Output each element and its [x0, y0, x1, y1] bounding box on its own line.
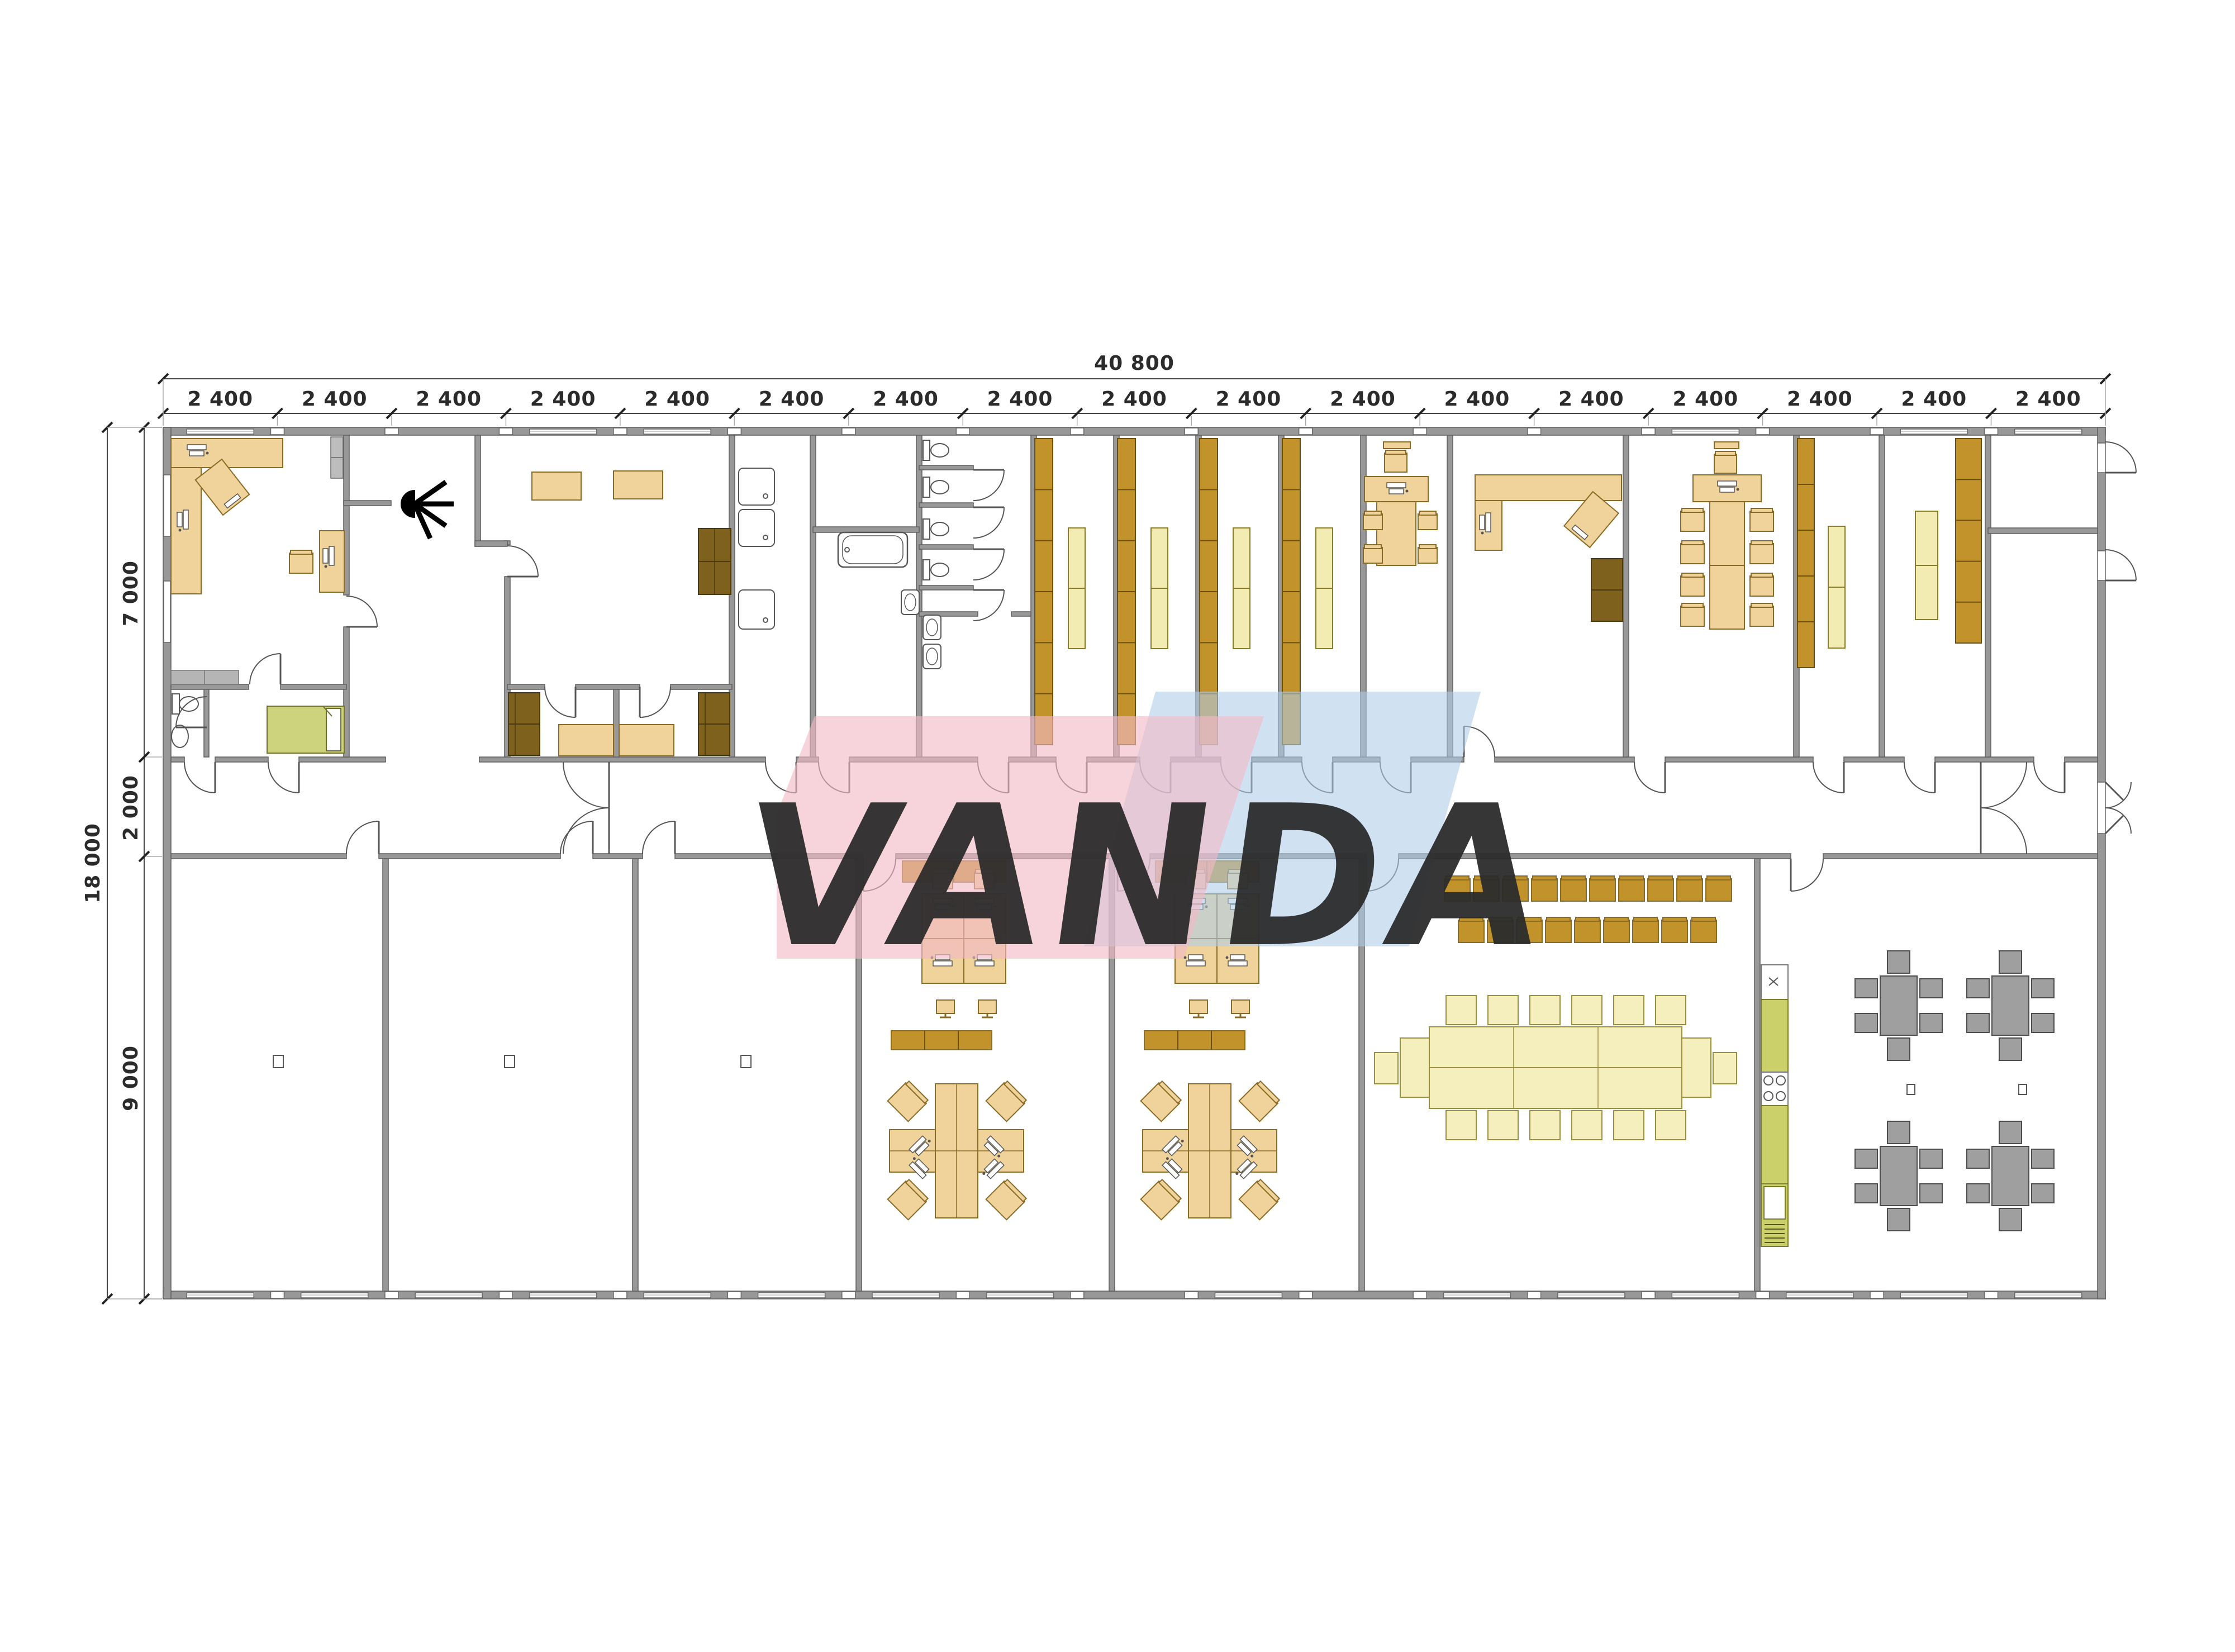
corridor-wall-top: [1935, 757, 2034, 762]
wall: [1988, 528, 2098, 534]
exec-desk-side: [171, 468, 201, 594]
exterior-wall-right: [2098, 473, 2105, 551]
lounge-table: [532, 472, 581, 500]
wall-column: [614, 1292, 627, 1298]
exec-chair: [289, 550, 313, 573]
wall-column: [1528, 1292, 1541, 1298]
corridor-wall-bottom: [379, 854, 560, 859]
wall-column: [956, 428, 969, 435]
wall: [280, 684, 346, 689]
wall: [919, 465, 973, 470]
wall: [475, 435, 481, 546]
credenza: [891, 1031, 992, 1050]
wall: [670, 684, 732, 689]
toilet-icon: [172, 694, 198, 714]
column: [741, 1055, 751, 1068]
shower-tray: [739, 590, 774, 629]
wall-column: [1642, 1292, 1655, 1298]
ceiling-light-icon: [401, 482, 454, 539]
wall: [919, 585, 973, 590]
corridor-wall-top: [2065, 757, 2098, 762]
chair: [1750, 603, 1773, 626]
stack-chair: [1662, 917, 1687, 942]
wall-column: [614, 428, 627, 435]
wall-column: [727, 1292, 741, 1298]
corridor-wall-bottom: [1823, 854, 2098, 859]
wall: [475, 541, 507, 546]
corridor-wall-top: [299, 757, 386, 762]
chair: [1681, 603, 1704, 626]
wall: [810, 435, 816, 757]
kitchenette: [1761, 965, 1788, 1246]
chair: [1681, 573, 1704, 596]
wall-column: [385, 1292, 398, 1298]
exterior-wall-right: [2098, 427, 2105, 443]
dining-table-set: [1855, 1121, 1942, 1231]
bed-pillow: [326, 708, 341, 751]
corridor-wall-top: [171, 757, 184, 762]
wall-column: [1870, 428, 1884, 435]
chair: [1363, 511, 1382, 530]
shower-tray: [739, 468, 774, 505]
wall: [507, 684, 545, 689]
wall: [204, 689, 209, 757]
wall-column: [499, 428, 512, 435]
dim-top-segment-label: 2 400: [1101, 388, 1167, 411]
stack-chair: [1706, 876, 1732, 901]
chair: [1750, 541, 1773, 564]
wall-shelf: [1383, 442, 1410, 449]
chair: [1363, 545, 1382, 563]
corridor-wall-top: [1495, 757, 1634, 762]
wall-column: [1185, 1292, 1198, 1298]
wall: [813, 527, 919, 532]
corridor-wall-bottom: [593, 854, 643, 859]
wall-column: [1756, 428, 1770, 435]
dim-top-segment-label: 2 400: [873, 388, 939, 411]
dim-top-segment-label: 2 400: [187, 388, 253, 411]
wall-column: [1299, 428, 1313, 435]
exterior-wall-right: [2098, 580, 2105, 782]
dining-table-set: [1967, 1121, 2054, 1231]
exterior-wall-left: [163, 427, 171, 1299]
chair: [1418, 545, 1437, 563]
tall-cabinet: [1915, 511, 1938, 620]
wall-column: [1071, 1292, 1084, 1298]
wall-column: [499, 1292, 512, 1298]
wall: [1879, 435, 1885, 757]
exterior-wall-top: [163, 427, 2105, 435]
dim-left-total-label: 18 000: [82, 823, 104, 903]
shelving-unit: [1797, 439, 1814, 668]
wall: [614, 689, 619, 757]
exec-desk-top: [171, 439, 283, 468]
dim-top-segment-label: 2 400: [1444, 388, 1510, 411]
room-divider-wall: [633, 859, 638, 1291]
exterior-door-leaf: [2098, 782, 2105, 834]
wall-column: [1413, 1292, 1426, 1298]
monitor-icon: [936, 1000, 954, 1017]
tall-cabinet: [1233, 528, 1250, 649]
office-chair: [1385, 450, 1407, 472]
tall-cabinet: [1151, 528, 1168, 649]
wall: [1623, 435, 1629, 757]
chair: [1681, 508, 1704, 531]
stack-chair: [1561, 876, 1586, 901]
wall-column: [1185, 428, 1198, 435]
wall-column: [1985, 428, 1998, 435]
side-table: [559, 725, 614, 756]
side-table: [619, 725, 674, 756]
stack-chair: [1677, 876, 1703, 901]
sink-icon: [172, 725, 188, 748]
wall-column: [1985, 1292, 1998, 1298]
shower-tray: [739, 510, 774, 546]
stack-chair: [1691, 917, 1716, 942]
chair: [888, 1080, 929, 1122]
wall: [1011, 612, 1031, 616]
sink-icon: [923, 615, 941, 640]
exterior-door-leaf: [2098, 551, 2105, 580]
dim-top-total-label: 40 800: [1094, 352, 1174, 375]
corridor-wall-bottom: [171, 854, 346, 859]
wall-tv: [1714, 442, 1739, 449]
monitor-icon: [1190, 1000, 1207, 1017]
dim-top-segment-label: 2 400: [644, 388, 710, 411]
dim-top-segment-label: 2 400: [1330, 388, 1396, 411]
toilet-icon: [923, 477, 949, 497]
floor-plan-sheet: 40 800 2 4002 4002 4002 4002 4002 4002 4…: [0, 0, 2235, 1652]
room-divider-wall: [1754, 859, 1760, 1291]
wall-column: [1756, 1292, 1770, 1298]
monitor-icon: [1231, 1000, 1249, 1017]
wall-column: [1413, 428, 1426, 435]
chair: [1418, 511, 1437, 530]
corridor-wall-top: [1844, 757, 1904, 762]
tall-cabinet: [1828, 526, 1845, 648]
stack-chair: [1546, 917, 1571, 942]
tall-cabinet: [1068, 528, 1085, 649]
corridor-wall-top: [479, 757, 765, 762]
wall-column: [727, 428, 741, 435]
column: [2019, 1084, 2027, 1094]
wall: [1985, 435, 1991, 757]
shelving-unit: [1117, 439, 1135, 745]
chair: [1750, 508, 1773, 531]
dim-top-segment-label: 2 400: [987, 388, 1053, 411]
dim-left-seg-7000: 7 000: [120, 560, 142, 626]
dining-table-set: [1967, 951, 2054, 1060]
chair: [1714, 451, 1737, 473]
dim-left-seg-2000: 2 000: [120, 775, 142, 841]
window: [164, 475, 170, 536]
chair: [1681, 541, 1704, 564]
exterior-door-leaf: [2098, 443, 2105, 473]
wall: [576, 684, 640, 689]
monitor-icon: [978, 1000, 996, 1017]
wall-column: [1299, 1292, 1313, 1298]
corridor-wall-top: [215, 757, 268, 762]
wall: [919, 503, 973, 507]
wall-column: [270, 1292, 284, 1298]
wall-column: [270, 428, 284, 435]
banquet-table: [1375, 996, 1737, 1140]
wall: [344, 501, 391, 506]
window: [164, 581, 170, 642]
corridor-wall-top: [1665, 757, 1813, 762]
room-divider-wall: [383, 859, 388, 1291]
chair: [1239, 1080, 1281, 1122]
stack-chair: [1633, 917, 1658, 942]
wall-column: [1071, 428, 1084, 435]
chair: [888, 1179, 929, 1220]
dim-top-segment-label: 2 400: [1787, 388, 1853, 411]
stack-chair: [1604, 917, 1629, 942]
wall-column: [1642, 428, 1655, 435]
dining-table-set: [1855, 951, 1942, 1060]
chair: [986, 1080, 1028, 1122]
tall-cabinet: [1316, 528, 1333, 649]
dim-top-segment-label: 2 400: [2015, 388, 2081, 411]
wall-column: [842, 1292, 855, 1298]
wall-column: [1528, 428, 1541, 435]
wall: [171, 684, 249, 689]
toilet-icon: [923, 519, 949, 539]
chair: [1239, 1179, 1281, 1220]
stack-chair: [1575, 917, 1600, 942]
vanda-watermark: VANDA: [731, 692, 1564, 991]
dim-top-segment-label: 2 400: [759, 388, 825, 411]
lounge-table: [614, 471, 663, 499]
dim-top-segment-label: 2 400: [1901, 388, 1967, 411]
dim-top-segment-label: 2 400: [416, 388, 482, 411]
dim-top-segment-label: 2 400: [530, 388, 596, 411]
column: [505, 1055, 515, 1068]
toilet-icon: [923, 560, 949, 580]
watermark-text: VANDA: [731, 764, 1564, 991]
floor-plan-svg: 40 800 2 4002 4002 4002 4002 4002 4002 4…: [0, 0, 2235, 1652]
dim-top-segment-label: 2 400: [1216, 388, 1282, 411]
exterior-wall-right: [2098, 834, 2105, 1299]
shelving-unit: [1956, 439, 1981, 643]
shelving-unit: [1035, 439, 1053, 745]
wall-column: [842, 428, 855, 435]
chair: [1141, 1080, 1182, 1122]
bathtub: [838, 532, 907, 567]
stack-chair: [1590, 876, 1615, 901]
dim-left-seg-9000: 9 000: [120, 1045, 142, 1111]
chair: [986, 1179, 1028, 1220]
wall-column: [1870, 1292, 1884, 1298]
wall-column: [385, 428, 398, 435]
sink-icon: [923, 644, 941, 669]
credenza: [1144, 1031, 1245, 1050]
wall: [919, 545, 973, 549]
dim-top-segment-label: 2 400: [1672, 388, 1738, 411]
sink-icon: [901, 590, 919, 615]
dim-top-segment-label: 2 400: [302, 388, 368, 411]
dim-top-segment-labels: 2 4002 4002 4002 4002 4002 4002 4002 400…: [187, 388, 2081, 411]
dim-top-segment-label: 2 400: [1558, 388, 1624, 411]
stack-chair: [1648, 876, 1673, 901]
stack-chair: [1619, 876, 1644, 901]
chair: [1750, 573, 1773, 596]
column: [1907, 1084, 1915, 1094]
column: [273, 1055, 283, 1068]
chair: [1141, 1179, 1182, 1220]
wall-column: [956, 1292, 969, 1298]
toilet-icon: [923, 440, 949, 460]
